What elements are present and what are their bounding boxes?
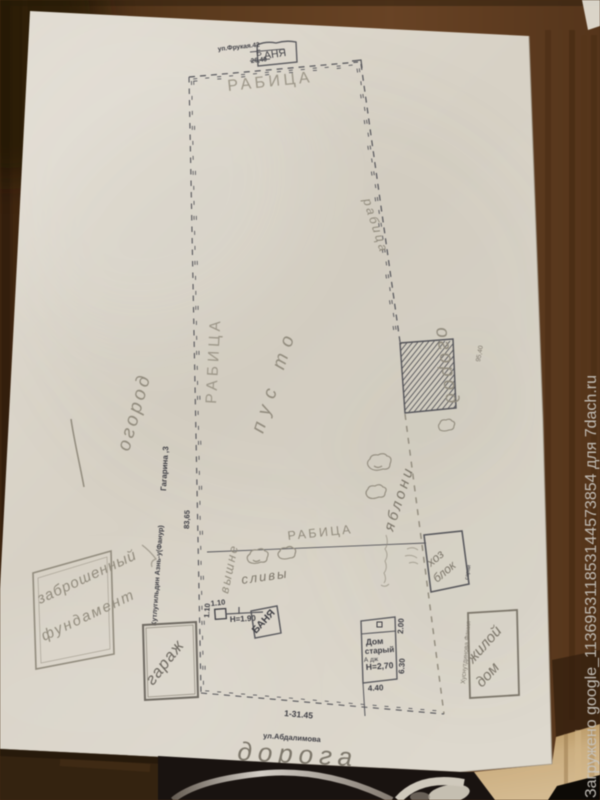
svg-text:1.10: 1.10 [202,603,212,618]
svg-text:2.00: 2.00 [396,618,406,635]
svg-text:Загружено google_1136953118531: Загружено google_113695311853144573854 д… [583,375,600,798]
svg-text:6.30: 6.30 [397,658,407,675]
svg-text:1.10: 1.10 [210,598,225,608]
svg-text:83,65: 83,65 [182,510,192,529]
svg-text:Н=2,70: Н=2,70 [365,660,394,672]
svg-text:4.40: 4.40 [368,683,385,693]
